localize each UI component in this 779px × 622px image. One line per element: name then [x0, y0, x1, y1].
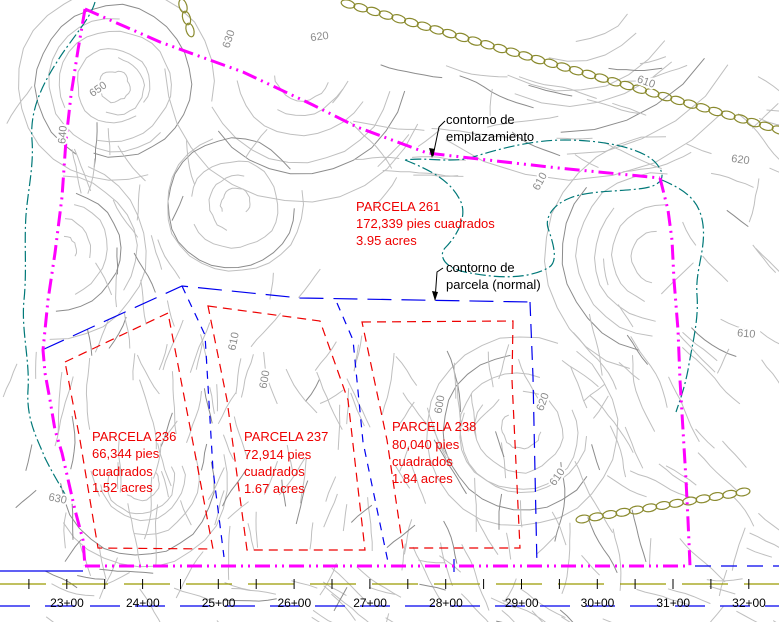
contour-stroke [519, 77, 597, 99]
parcel-238-name: PARCELA 238 [392, 419, 476, 434]
contour-stroke [26, 445, 32, 471]
parcel-237-area2: cuadrados [244, 464, 305, 479]
contour-elevation-label: 610 [531, 171, 550, 193]
contour-stroke [386, 618, 431, 622]
contour-field [3, 0, 779, 622]
contour-elevation-label: 600 [433, 394, 448, 414]
contour-stroke [732, 528, 745, 571]
contour-stroke [727, 210, 749, 226]
contour-stroke [64, 513, 66, 549]
contour-stroke [201, 444, 206, 470]
chain-link [655, 501, 670, 511]
contour-stroke [210, 387, 215, 414]
annotation-text: contorno de emplazamiento contorno de pa… [446, 112, 541, 292]
contour-stroke [156, 504, 158, 567]
contour-stroke [711, 173, 754, 187]
contour-stroke [404, 519, 411, 554]
contour-stroke [709, 586, 735, 594]
chain-link [670, 95, 686, 106]
contour-stroke [305, 379, 319, 402]
contour-stroke [537, 535, 556, 554]
contour-stroke [64, 236, 77, 256]
contour-stroke [756, 249, 779, 290]
contour-stroke [562, 187, 638, 350]
contour-stroke [590, 396, 633, 453]
chain-link [556, 61, 572, 72]
contour-stroke [71, 416, 75, 469]
chain-link [733, 113, 749, 124]
parcel-divider-3 [530, 302, 537, 567]
contour-stroke [703, 256, 728, 282]
contour-stroke [610, 426, 625, 477]
contour-stroke [707, 579, 743, 581]
contour-elevation-label: 620 [730, 153, 750, 167]
contour-stroke [619, 362, 640, 380]
contour-stroke [439, 556, 460, 573]
contour-stroke [99, 569, 153, 573]
contour-stroke [46, 617, 95, 622]
contour-stroke [228, 526, 230, 580]
chain-link [480, 39, 496, 50]
chain-link [695, 494, 710, 504]
contour-stroke [19, 0, 215, 180]
contour-stroke [752, 103, 778, 128]
contour-stroke [502, 610, 522, 622]
contour-stroke [87, 329, 91, 356]
contour-stroke [172, 196, 183, 221]
leader-arrow-parcel [432, 291, 438, 301]
parcel-236-area2: cuadrados [92, 464, 153, 479]
contour-stroke [587, 100, 639, 114]
contour-stroke [331, 594, 355, 621]
contour-stroke [77, 576, 104, 580]
contour-stroke [326, 477, 336, 502]
station-labels: 23+0024+0025+0026+0027+0028+0029+0030+00… [50, 596, 766, 610]
chain-link [467, 35, 483, 46]
chain-link [442, 28, 458, 39]
parcel-261-acres: 3.95 acres [356, 233, 417, 248]
contour-stroke [241, 354, 253, 397]
chain-link [353, 2, 369, 13]
contour-stroke [369, 587, 395, 594]
contour-stroke [317, 372, 343, 430]
contour-stroke [137, 185, 140, 221]
contour-elevation-label: 620 [534, 391, 552, 412]
contour-stroke [45, 571, 77, 588]
contour-elevation-label: 650 [87, 79, 109, 99]
contour-stroke [324, 494, 338, 527]
contour-stroke [736, 611, 760, 622]
contour-stroke [159, 344, 167, 370]
contour-stroke [605, 142, 662, 168]
site-plan-drawing: 23+0024+0025+0026+0027+0028+0029+0030+00… [0, 0, 779, 622]
parcel-238-acres: 1.84 acres [392, 471, 453, 486]
contour-stroke [666, 466, 696, 485]
contour-stroke [86, 358, 89, 430]
parcel-labels: PARCELA 261 172,339 pies cuadrados 3.95 … [92, 199, 495, 496]
contour-stroke [640, 57, 666, 64]
contour-stroke [683, 222, 696, 245]
parcel-236-area: 66,344 pies [92, 446, 160, 461]
station-label: 30+00 [581, 596, 615, 610]
contour-stroke [678, 333, 715, 372]
chain-link [568, 65, 584, 76]
contour-stroke [734, 497, 754, 526]
contour-stroke [661, 263, 693, 294]
chain-link [615, 507, 630, 517]
contour-stroke [275, 76, 329, 102]
contour-stroke [562, 523, 570, 594]
contour-stroke [612, 103, 646, 115]
chain-link [454, 32, 470, 43]
contour-stroke [52, 584, 95, 596]
contour-stroke [72, 149, 81, 193]
contour-stroke [351, 393, 365, 426]
contour-stroke [310, 522, 313, 549]
contour-stroke [396, 356, 417, 385]
contour-stroke [593, 396, 608, 419]
contour-stroke [158, 240, 180, 279]
contour-stroke [338, 405, 340, 450]
chain-link [366, 6, 382, 17]
chain-link [657, 91, 673, 102]
leader-site-boundary [433, 121, 445, 156]
contour-stroke [163, 320, 183, 370]
contour-stroke [167, 301, 174, 327]
contour-stroke [187, 391, 202, 443]
site-boundary-label-line2: emplazamiento [446, 129, 534, 144]
contour-stroke [758, 513, 779, 542]
contour-stroke [552, 512, 566, 545]
contour-stroke [770, 168, 779, 182]
contour-stroke [767, 110, 779, 123]
parcel-238-area2: cuadrados [392, 454, 453, 469]
contour-stroke [246, 129, 268, 158]
chain-link [669, 498, 684, 508]
chain-link [340, 0, 356, 10]
contour-stroke [698, 453, 737, 491]
contour-stroke [747, 548, 772, 557]
contour-stroke [604, 259, 609, 286]
contour-stroke [696, 429, 715, 448]
contour-stroke [357, 567, 401, 598]
chain-link [682, 496, 697, 506]
contour-stroke [562, 360, 598, 386]
chain-link [695, 102, 711, 113]
contour-stroke [59, 31, 171, 142]
contour-stroke [625, 427, 643, 468]
teal-contours [23, 2, 703, 500]
contour-stroke [760, 332, 779, 354]
contour-stroke [446, 66, 508, 77]
contour-stroke [618, 305, 633, 328]
contour-stroke [106, 58, 145, 115]
contour-stroke [137, 355, 159, 394]
contour-stroke [113, 200, 138, 238]
contour-stroke [474, 391, 563, 473]
contour-stroke [209, 175, 244, 230]
contour-stroke [161, 471, 168, 497]
parcel-237-acres: 1.67 acres [244, 481, 305, 496]
contour-stroke [507, 533, 511, 560]
contour-stroke [520, 500, 522, 527]
contour-stroke [236, 358, 241, 394]
contour-stroke [532, 611, 551, 622]
contour-stroke [50, 167, 146, 340]
contour-elevation-label: 630 [221, 28, 238, 49]
contour-stroke [557, 138, 593, 139]
contour-stroke [299, 269, 321, 298]
contour-stroke [237, 81, 363, 136]
contour-elevation-label: 610 [226, 331, 242, 351]
contour-stroke [613, 529, 621, 591]
chain-link [709, 492, 724, 502]
contour-stroke [419, 584, 445, 590]
contour-stroke [418, 560, 445, 563]
contour-stroke [719, 570, 727, 596]
chain-link [629, 505, 644, 515]
contour-stroke [217, 384, 218, 411]
contour-stroke [475, 478, 477, 532]
parcel-237-area: 72,914 pies [244, 447, 312, 462]
chain-link [602, 510, 617, 520]
contour-stroke [576, 14, 628, 42]
chain-link [581, 69, 597, 80]
parcel-261-name: PARCELA 261 [356, 199, 440, 214]
chain-link [708, 106, 724, 117]
contour-stroke [256, 512, 258, 548]
contour-stroke [134, 253, 155, 293]
contour-stroke [612, 205, 666, 302]
contour-stroke [55, 377, 73, 447]
contour-stroke [106, 573, 130, 585]
contour-stroke [496, 431, 505, 457]
contour-stroke [3, 364, 17, 397]
contour-stroke [750, 533, 779, 549]
chain-link [505, 47, 521, 58]
contour-elevation-label: 630 [47, 491, 67, 507]
contour-stroke [650, 538, 651, 565]
chain-link [642, 503, 657, 513]
station-label: 29+00 [505, 596, 539, 610]
parcel-boundary-label-line2: parcela (normal) [446, 277, 541, 292]
contour-stroke [248, 523, 254, 549]
station-label: 25+00 [202, 596, 236, 610]
station-label: 24+00 [126, 596, 160, 610]
contour-stroke [686, 144, 711, 154]
contour-stroke [680, 538, 725, 582]
site-plan-canvas: 23+0024+0025+0026+0027+0028+0029+0030+00… [0, 0, 779, 622]
contour-stroke [354, 157, 399, 159]
chain-link [518, 50, 534, 61]
contour-stroke [571, 366, 587, 408]
contour-stroke [251, 313, 281, 347]
contour-stroke [63, 176, 137, 290]
contour-stroke [669, 377, 700, 442]
chain-link [492, 43, 508, 54]
contour-stroke [350, 122, 392, 169]
contour-stroke [190, 322, 210, 372]
parcel-236-acres: 1.52 acres [92, 480, 153, 495]
contour-stroke [592, 444, 600, 470]
parcel-boundary-label-line1: contorno de [446, 260, 515, 275]
contour-stroke [151, 235, 161, 269]
contour-stroke [286, 369, 317, 413]
chain-link [416, 21, 432, 32]
contour-stroke [631, 231, 657, 282]
contour-stroke [762, 360, 779, 403]
chain-link [429, 24, 445, 35]
contour-stroke [320, 390, 343, 404]
contour-stroke [444, 521, 457, 564]
contour-stroke [228, 502, 249, 519]
contour-stroke [65, 219, 91, 258]
contour-stroke [382, 353, 394, 415]
contour-stroke [315, 342, 336, 371]
contour-stroke [575, 461, 613, 533]
parcel-261-area: 172,339 pies cuadrados [356, 216, 495, 231]
contour-elevation-label: 610 [737, 327, 756, 341]
contour-stroke [16, 490, 37, 508]
contour-stroke [588, 517, 617, 573]
contour-stroke [381, 65, 443, 78]
parcel-236-name: PARCELA 236 [92, 429, 176, 444]
contour-stroke [576, 173, 668, 336]
contour-stroke [691, 328, 736, 357]
contour-stroke [722, 441, 746, 468]
contour-stroke [218, 393, 236, 424]
teal-contour-loop [405, 140, 662, 277]
contour-elevation-label: 640 [56, 125, 70, 144]
contour-stroke [192, 161, 278, 248]
station-label: 28+00 [429, 596, 463, 610]
contour-stroke [589, 314, 602, 376]
contour-stroke [573, 333, 616, 390]
parcel-238-area: 80,040 pies [392, 437, 460, 452]
station-label: 26+00 [277, 596, 311, 610]
site-boundary-label-line1: contorno de [446, 112, 515, 127]
contour-stroke [109, 317, 126, 348]
contour-elevation-label: 620 [310, 30, 330, 44]
contour-stroke [343, 504, 347, 531]
contour-stroke [749, 178, 759, 222]
contour-stroke [454, 363, 456, 399]
contour-stroke [758, 77, 779, 110]
contour-stroke [460, 413, 587, 493]
contour-stroke [717, 349, 729, 374]
contour-stroke [413, 547, 442, 603]
station-label: 27+00 [353, 596, 387, 610]
contour-stroke [231, 589, 276, 595]
chain-link [391, 13, 407, 24]
contour-stroke [632, 510, 646, 562]
chain-link [594, 72, 610, 83]
contour-stroke [220, 188, 250, 212]
contour-stroke [461, 594, 492, 622]
chain-link [530, 54, 546, 65]
contour-stroke [631, 336, 668, 407]
chain-link [759, 121, 775, 132]
chain-link [378, 9, 394, 20]
contour-stroke [488, 352, 493, 388]
contour-stroke [65, 540, 81, 562]
station-label: 32+00 [732, 596, 766, 610]
contour-stroke [376, 613, 389, 622]
contour-stroke [78, 49, 150, 123]
contour-stroke [116, 271, 117, 307]
contour-stroke [501, 442, 505, 478]
chain-link [721, 110, 737, 121]
station-label: 31+00 [656, 596, 690, 610]
contour-stroke [133, 353, 135, 380]
chain-link [589, 512, 604, 522]
contour-stroke [36, 352, 37, 379]
contour-stroke [124, 313, 129, 349]
station-label: 23+00 [50, 596, 84, 610]
contour-stroke [320, 563, 337, 595]
contour-stroke [659, 464, 688, 485]
contour-stroke [706, 607, 723, 622]
contour-stroke [607, 476, 646, 497]
chain-link [735, 487, 750, 497]
contour-stroke [462, 544, 489, 610]
chain-link [404, 17, 420, 28]
parcel-237-name: PARCELA 237 [244, 429, 328, 444]
contour-stroke [387, 525, 415, 548]
chain-link [184, 22, 195, 38]
contour-stroke [584, 384, 605, 401]
